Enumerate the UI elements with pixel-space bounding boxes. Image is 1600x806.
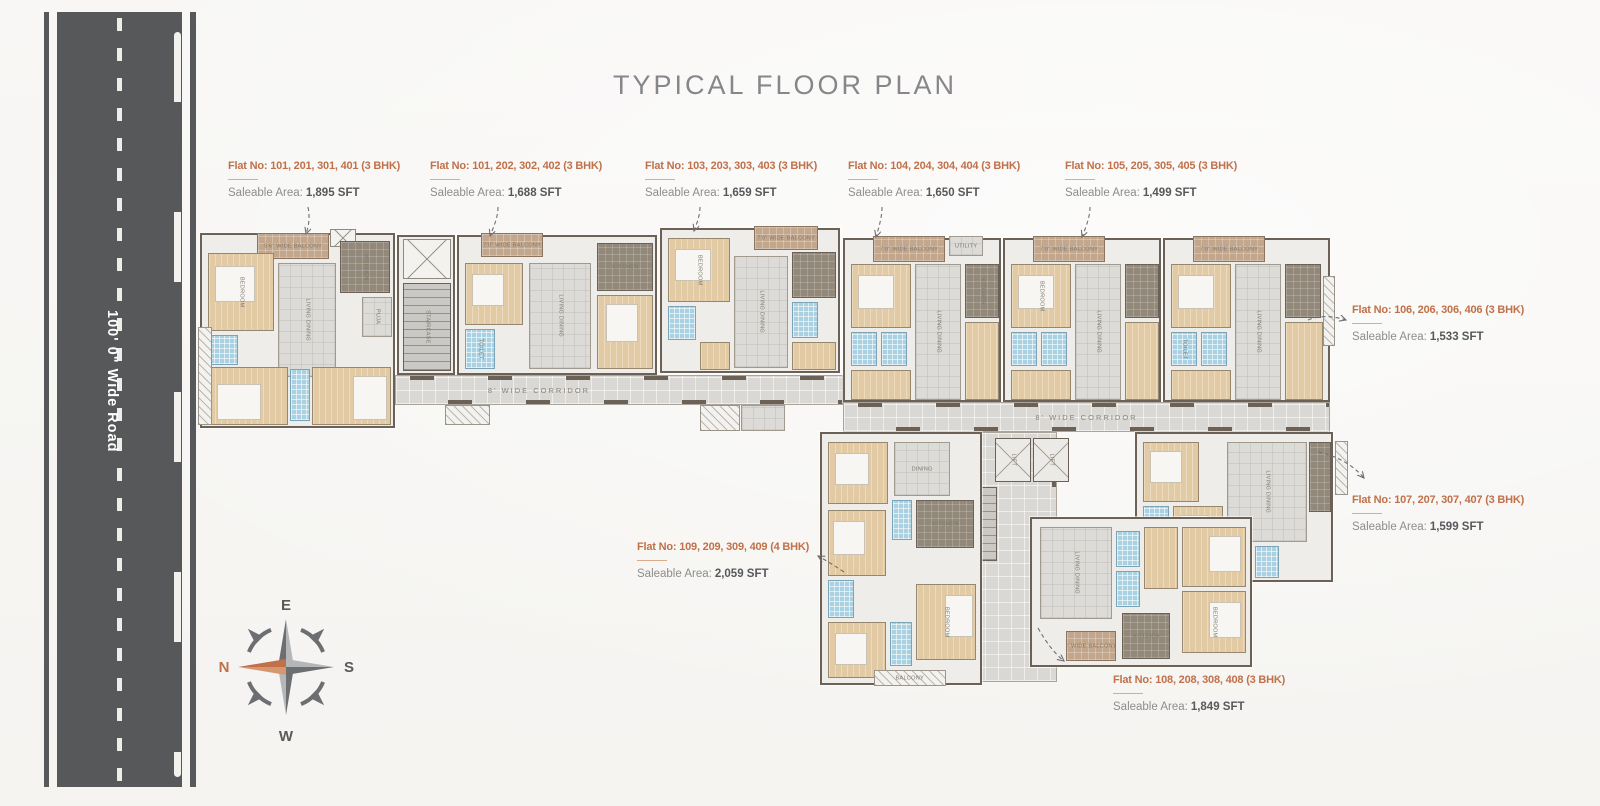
kitchen: KITCHEN [1122,613,1170,659]
dining: DINING [894,442,950,496]
balcony-label: BALCONY [896,675,924,681]
living-label: LIVING DINING [1073,552,1079,595]
kitchen-label: KITCHEN [979,278,985,304]
floor-plan-poster: TYPICAL FLOOR PLAN 100' 0" Wide Road [0,0,1600,806]
toilet: TOILET [1171,332,1197,366]
bedroom [1011,370,1071,400]
stair-core: STAIRCASE [397,235,455,375]
bedroom [1285,322,1323,400]
balcony [445,405,490,425]
living-label: LIVING DINING [304,299,310,342]
compass-west: W [279,728,294,745]
balcony-label: 7'0" WIDE BALCONY [880,246,938,252]
balcony-label: 7'0" WIDE BALCONY [757,235,815,241]
road: 100' 0" Wide Road [57,12,182,787]
balcony: 7'0" WIDE BALCONY [754,226,818,250]
bed [1178,275,1214,309]
corridor: 8' WIDE CORRIDOR [843,402,1330,432]
label-divider [1352,323,1382,324]
bedroom: BEDROOM [916,584,976,660]
kitchen [1309,442,1331,512]
flat-number: Flat No: 101, 202, 302, 402 (3 BHK) [430,160,660,172]
bedroom: BEDROOM [1182,591,1246,653]
saleable-area-label: Saleable Area: [848,187,923,199]
balcony: 7'0" WIDE BALCONY [481,233,543,257]
bedroom [312,367,391,425]
flat-label-104: Flat No: 104, 204, 304, 404 (3 BHK) Sale… [848,160,1078,199]
bedroom: BEDROOM [208,253,274,331]
puja: PUJA [362,297,392,337]
saleable-area-label: Saleable Area: [1352,331,1427,343]
living-label: LIVING DINING [1264,471,1270,514]
flat-label-109: Flat No: 109, 209, 309, 409 (4 BHK) Sale… [637,541,867,580]
flat-number: Flat No: 103, 203, 303, 403 (3 BHK) [645,160,875,172]
label-divider [1113,693,1143,694]
bedroom [1125,322,1159,400]
balcony-label: 9' WIDE BALCONY [1066,643,1116,649]
saleable-area-label: Saleable Area: [1113,701,1188,713]
balcony: BALCONY [874,670,946,686]
bedroom [1143,442,1199,502]
toilet [1201,332,1227,366]
kitchen-label: KITCHEN [932,521,958,527]
flat-number: Flat No: 105, 205, 305, 405 (3 BHK) [1065,160,1295,172]
bed [1209,536,1241,572]
balcony: 7'0" WIDE BALCONY [873,236,945,262]
utility-label: UTILITY [955,243,978,249]
flat-number: Flat No: 109, 209, 309, 409 (4 BHK) [637,541,867,553]
floor-plan: 5'6" WIDE BALCONY KITCHEN BEDROOM LIVING… [195,225,1345,705]
living-label: LIVING DINING [1255,311,1261,354]
bedroom [700,342,730,370]
side-balcony [1323,276,1335,346]
toilet [1011,332,1037,366]
toilet: TOILET [465,329,495,369]
living-dining: LIVING DINING [278,263,336,377]
corridor-label: 8' WIDE CORRIDOR [488,386,590,395]
bedroom-label: BEDROOM [1038,281,1044,312]
duct [403,239,451,279]
label-divider [848,179,878,180]
label-divider [228,179,258,180]
label-divider [637,560,667,561]
puja-label: PUJA [374,309,380,324]
road-label: 100' 0" Wide Road [104,310,120,452]
kitchen-label: KITCHEN [1133,633,1159,639]
lift-label: LIFT [1048,454,1054,466]
unit-108: LIVING DINING BEDROOM KITCHEN 9' WIDE BA… [1030,517,1252,667]
staircase: STAIRCASE [403,283,451,371]
saleable-area-label: Saleable Area: [645,187,720,199]
bedroom-label: BEDROOM [696,255,702,286]
bedroom [851,264,911,328]
toilet-label: TOILET [1181,339,1187,360]
road-edge-line [174,32,181,777]
saleable-area-value: 1,849 SFT [1191,701,1245,713]
bed [1018,275,1054,309]
living-dining: LIVING DINING [529,263,591,369]
bed [606,304,638,342]
unit-106: 7'0" WIDE BALCONY LIVING DINING TOILET [1163,238,1330,402]
dining-label: DINING [911,466,932,472]
bedroom-label: BEDROOM [943,607,949,638]
saleable-area-value: 1,499 SFT [1143,187,1197,199]
flat-number: Flat No: 104, 204, 304, 404 (3 BHK) [848,160,1078,172]
saleable-area-label: Saleable Area: [430,187,505,199]
bedroom [1171,264,1231,328]
flat-label-106: Flat No: 106, 206, 306, 406 (3 BHK) Sale… [1352,304,1582,343]
toilet-label: TOILET [477,339,483,360]
living-label: LIVING DINING [935,311,941,354]
toilet [1041,332,1067,366]
lift: LIFT [1033,438,1069,482]
saleable-area-label: Saleable Area: [637,568,712,580]
balcony-label: 7'0" WIDE BALCONY [1200,246,1258,252]
unit-105: 7'0" WIDE BALCONY BEDROOM LIVING DINING [1003,238,1161,402]
living-label: LIVING DINING [758,291,764,334]
bedroom [851,370,911,400]
kitchen [1125,264,1159,318]
bedroom [1171,370,1231,400]
label-divider [645,179,675,180]
bed [1150,451,1182,483]
living-dining: LIVING DINING [1040,527,1112,619]
bedroom-label: BEDROOM [238,277,244,308]
kitchen: KITCHEN [916,500,974,548]
unit-103: 7'0" WIDE BALCONY BEDROOM LIVING DINING [660,228,840,373]
balcony: 9' WIDE BALCONY [1066,631,1116,661]
bedroom [1182,527,1246,587]
utility: UTILITY [949,236,983,256]
bed [215,266,255,302]
saleable-area-label: Saleable Area: [1352,521,1427,533]
toilet [1255,546,1279,578]
lift-label: LIFT [1010,454,1016,466]
bedroom [1144,527,1178,589]
kitchen [792,252,836,298]
bed [835,453,869,485]
bedroom [465,263,523,325]
bedroom [597,295,653,369]
balcony-label: 5'6" WIDE BALCONY [264,243,322,249]
saleable-area-value: 2,059 SFT [715,568,769,580]
toilet [290,369,310,421]
bed [217,384,261,420]
kitchen-label: KITCHEN [612,264,638,270]
label-divider [430,179,460,180]
flat-label-105: Flat No: 105, 205, 305, 405 (3 BHK) Sale… [1065,160,1295,199]
living-dining: LIVING DINING [1235,264,1281,400]
saleable-area-value: 1,533 SFT [1430,331,1484,343]
toilet [828,580,854,618]
flat-label-102: Flat No: 101, 202, 302, 402 (3 BHK) Sale… [430,160,660,199]
saleable-area-label: Saleable Area: [1065,187,1140,199]
kitchen [1285,264,1321,318]
saleable-area-value: 1,599 SFT [1430,521,1484,533]
balcony [700,405,740,431]
flat-label-107: Flat No: 107, 207, 307, 407 (3 BHK) Sale… [1352,494,1582,533]
saleable-area-value: 1,659 SFT [723,187,777,199]
saleable-area-label: Saleable Area: [228,187,303,199]
flat-label-103: Flat No: 103, 203, 303, 403 (3 BHK) Sale… [645,160,875,199]
toilet [851,332,877,366]
balcony-label: 7'0" WIDE BALCONY [1040,246,1098,252]
kitchen: KITCHEN [965,264,999,318]
saleable-area-value: 1,650 SFT [926,187,980,199]
corridor: 8' WIDE CORRIDOR [395,375,843,405]
bedroom-label: BEDROOM [1211,607,1217,638]
bed [858,275,894,309]
kitchen: KITCHEN [340,241,390,293]
unit-102: 7'0" WIDE BALCONY LIVING DINING KITCHEN … [457,235,657,375]
kitchen: KITCHEN [597,243,653,291]
flat-number: Flat No: 101, 201, 301, 401 (3 BHK) [228,160,458,172]
balcony-label: 7'0" WIDE BALCONY [483,242,541,248]
boundary-wall-left [44,12,49,787]
label-divider [1065,179,1095,180]
saleable-area-value: 1,895 SFT [306,187,360,199]
bedroom [208,367,288,425]
label-divider [1352,513,1382,514]
toilet [668,306,696,340]
living-label: LIVING DINING [1095,311,1101,354]
flat-number: Flat No: 107, 207, 307, 407 (3 BHK) [1352,494,1582,506]
corridor-label: 8' WIDE CORRIDOR [1035,413,1137,422]
lift: LIFT [995,438,1031,482]
bedroom [792,342,836,370]
unit-104: 7'0" WIDE BALCONY UTILITY LIVING DINING … [843,238,1001,402]
toilet [1116,531,1140,567]
toilet [1116,571,1140,607]
balcony: 7'0" WIDE BALCONY [1033,236,1105,262]
toilet [881,332,907,366]
staircase-label: STAIRCASE [424,310,430,343]
unit-101: 5'6" WIDE BALCONY KITCHEN BEDROOM LIVING… [200,233,395,428]
living-dining: LIVING DINING [915,264,961,400]
living-label: LIVING DINING [557,295,563,338]
toilet [892,500,912,540]
flat-number: Flat No: 108, 208, 308, 408 (3 BHK) [1113,674,1343,686]
side-balcony [1335,441,1348,495]
toilet [208,335,238,365]
bedroom: BEDROOM [668,238,730,302]
side-balcony [198,327,212,425]
flat-label-101: Flat No: 101, 201, 301, 401 (3 BHK) Sale… [228,160,458,199]
toilet [890,622,912,666]
bedroom [965,322,999,400]
living-dining: LIVING DINING [1075,264,1121,400]
balcony: 7'0" WIDE BALCONY [1193,236,1265,262]
bed [675,249,711,281]
flat-number: Flat No: 106, 206, 306, 406 (3 BHK) [1352,304,1582,316]
toilet [792,302,818,338]
bed [353,376,387,420]
bedroom [828,442,888,504]
bed [835,633,867,665]
living-dining: LIVING DINING [734,256,788,368]
flat-label-108: Flat No: 108, 208, 308, 408 (3 BHK) Sale… [1113,674,1343,713]
lobby [741,405,785,431]
saleable-area-value: 1,688 SFT [508,187,562,199]
bed [472,274,504,306]
kitchen-label: KITCHEN [362,254,368,280]
bedroom: BEDROOM [1011,264,1071,328]
page-title: TYPICAL FLOOR PLAN [0,70,1570,101]
